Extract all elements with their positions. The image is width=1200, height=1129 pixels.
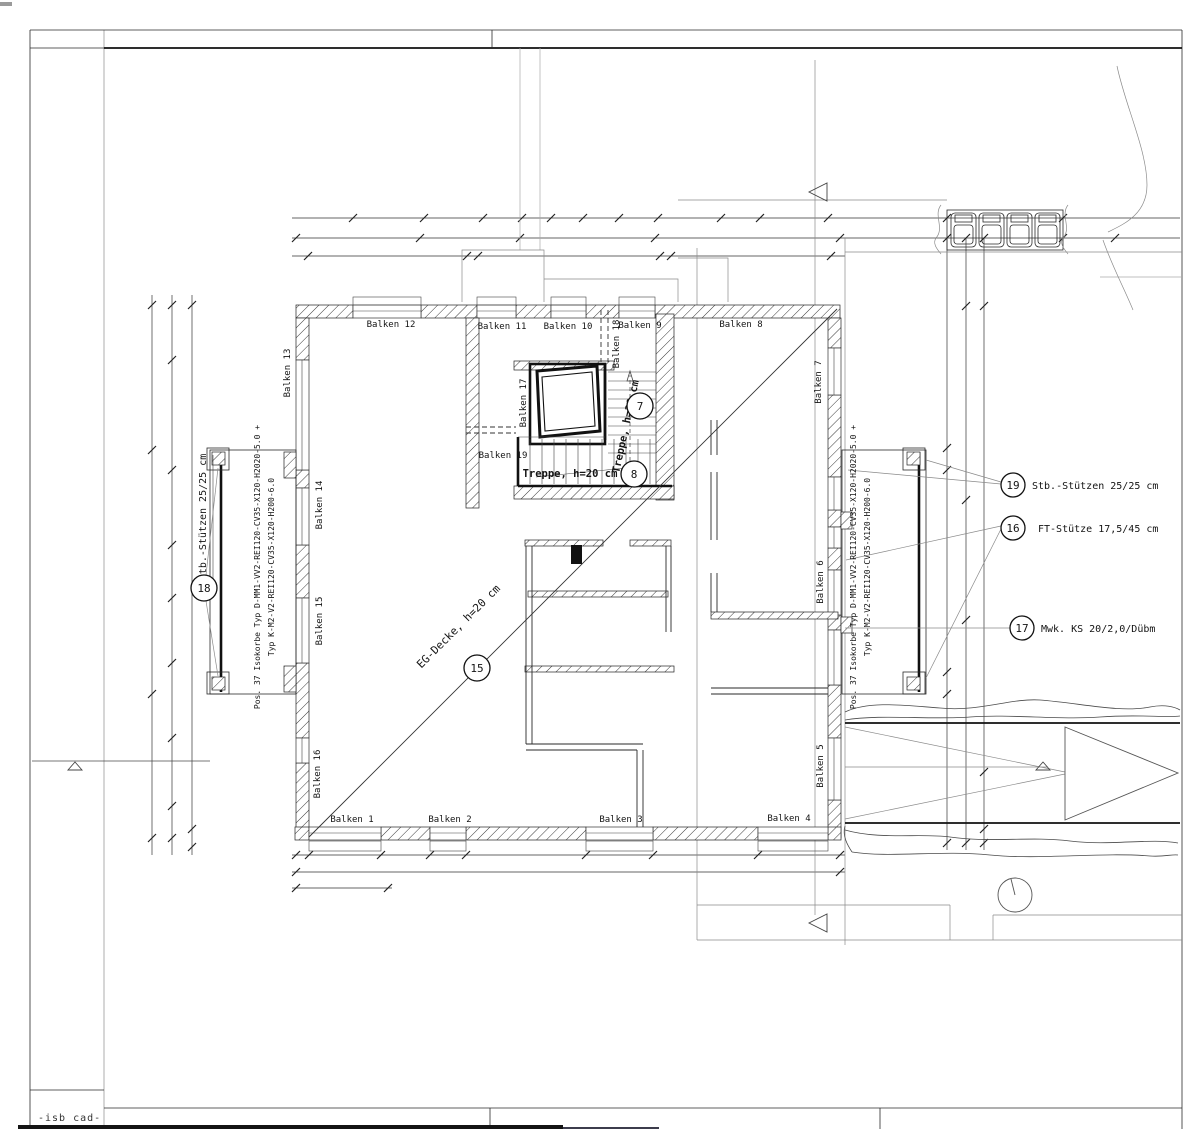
beam-label-18: Balken 18 xyxy=(612,320,622,369)
callout-8-icon: 8 xyxy=(621,461,647,487)
column xyxy=(571,545,582,564)
isokorb-label-right-1: Pos. 37 Isokorbe Typ D-MM1-VV2-REI120-CV… xyxy=(849,425,858,709)
terrain-lower xyxy=(844,823,1180,857)
isokorb-label-right-2: Typ K-M2-V2-REI120-CV35-X120-H200-6.0 xyxy=(863,478,872,656)
corner-mark xyxy=(0,2,12,6)
beam-label-19: Balken 19 xyxy=(479,451,528,461)
beam-label-15: Balken 15 xyxy=(315,597,325,646)
section-marker-bottom-icon xyxy=(809,914,827,932)
terrain-upper xyxy=(845,700,1180,723)
beam-label-3: Balken 3 xyxy=(599,815,642,825)
beam-label-4: Balken 4 xyxy=(767,814,810,824)
road-edge-2 xyxy=(1103,240,1133,310)
annotation-17: Mwk. KS 20/2,0/Dübm xyxy=(1041,624,1155,635)
beam-label-10: Balken 10 xyxy=(544,322,593,332)
page-frame: -isb cad- xyxy=(0,2,1182,1129)
section-marker-top-icon xyxy=(809,183,827,201)
direction-triangle-icon xyxy=(1065,727,1178,820)
callout-18-icon: 18 xyxy=(191,575,217,601)
beam-label-7: Balken 7 xyxy=(814,360,824,403)
callout-15-icon: 15 xyxy=(464,655,490,681)
beam-label-17: Balken 17 xyxy=(519,379,529,428)
level-marker-left-icon xyxy=(32,761,210,770)
beam-label-14: Balken 14 xyxy=(315,481,325,530)
balcony-left xyxy=(206,448,296,694)
road-edge xyxy=(1108,66,1147,232)
survey-circle-icon xyxy=(998,878,1032,912)
isokorb-label-left-1: Pos. 37 Isokorbe Typ D-MM1-VV2-REI120-CV… xyxy=(253,425,262,709)
left-support-label: Stb.-Stützen 25/25 cm xyxy=(198,454,209,580)
beam-label-13: Balken 13 xyxy=(283,349,293,398)
deck-label: EG-Decke, h=20 cm xyxy=(414,582,503,671)
beam-label-2: Balken 2 xyxy=(428,815,471,825)
labels: Balken 1 Balken 2 Balken 3 Balken 4 Balk… xyxy=(198,320,1158,825)
svg-text:8: 8 xyxy=(631,468,638,481)
callout-7-icon: 7 xyxy=(627,393,653,419)
beam-label-5: Balken 5 xyxy=(816,744,826,787)
beam-label-8: Balken 8 xyxy=(719,320,762,330)
svg-text:19: 19 xyxy=(1006,479,1019,492)
slope-arrow xyxy=(845,727,1178,820)
beam-label-9: Balken 9 xyxy=(618,321,661,331)
carport-block xyxy=(935,205,1068,254)
stair-label-lower: Treppe, h=20 cm xyxy=(523,468,618,480)
footer-label: -isb cad- xyxy=(38,1113,101,1124)
beam-label-6: Balken 6 xyxy=(816,560,826,603)
callout-16-icon: 16 xyxy=(1001,516,1025,540)
break-line-icon xyxy=(935,205,941,254)
svg-text:18: 18 xyxy=(197,582,210,595)
callout-19-icon: 19 xyxy=(1001,473,1025,497)
beam-label-12: Balken 12 xyxy=(367,320,416,330)
footer-bar xyxy=(18,1125,563,1129)
annotation-16: FT-Stütze 17,5/45 cm xyxy=(1038,524,1158,535)
floor-plan xyxy=(206,297,1010,851)
callout-17-icon: 17 xyxy=(1010,616,1034,640)
beam-label-16: Balken 16 xyxy=(313,750,323,799)
cad-sheet: -isb cad- xyxy=(0,0,1200,1129)
isokorb-label-left-2: Typ K-M2-V2-REI120-CV35-X120-H200-6.0 xyxy=(267,478,276,656)
svg-text:7: 7 xyxy=(637,400,644,413)
svg-text:16: 16 xyxy=(1006,522,1019,535)
annotation-19: Stb.-Stützen 25/25 cm xyxy=(1032,481,1158,492)
beam-label-1: Balken 1 xyxy=(330,815,373,825)
beam-label-11: Balken 11 xyxy=(478,322,527,332)
svg-text:15: 15 xyxy=(470,662,483,675)
svg-text:17: 17 xyxy=(1015,622,1028,635)
floor-plan-drawing: -isb cad- xyxy=(0,0,1200,1129)
